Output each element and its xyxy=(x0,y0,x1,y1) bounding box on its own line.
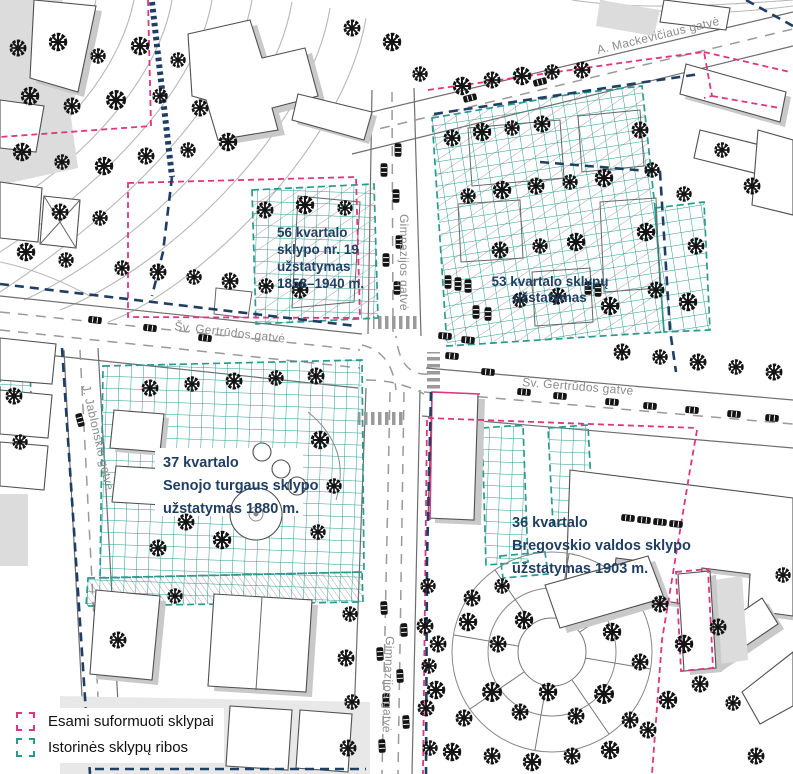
tree-icon xyxy=(638,224,654,240)
tree-icon xyxy=(151,265,165,279)
tree-icon xyxy=(727,697,740,710)
tree-icon xyxy=(220,134,236,150)
tree-icon xyxy=(422,580,435,593)
tree-icon xyxy=(339,651,353,665)
tree-icon xyxy=(444,744,460,760)
tree-icon xyxy=(745,179,759,193)
building xyxy=(678,571,722,675)
tree-icon xyxy=(524,754,540,770)
tree-icon xyxy=(258,203,272,217)
annotation-line: užstatymas xyxy=(470,290,630,306)
tree-icon xyxy=(568,234,584,250)
annotation-line: užstatymas 1880 m. xyxy=(163,498,319,521)
car-icon xyxy=(75,413,85,428)
street-label-gimnazijos-north: Gimnazijos gatvė xyxy=(397,214,411,311)
tree-icon xyxy=(96,158,112,174)
tree-icon xyxy=(623,713,637,727)
tree-icon xyxy=(676,636,692,652)
tree-icon xyxy=(575,63,589,77)
car-icon xyxy=(143,324,157,332)
tree-icon xyxy=(94,212,107,225)
tree-icon xyxy=(569,709,583,723)
tree-icon xyxy=(143,381,157,395)
tree-icon xyxy=(711,620,725,634)
annotation-block37: 37 kvartalo Senojo turgaus sklypo užstat… xyxy=(163,452,319,521)
car-icon xyxy=(393,189,400,203)
annotation-line: užstatymas xyxy=(277,258,364,275)
tree-icon xyxy=(188,271,201,284)
car-icon xyxy=(455,277,462,291)
tree-icon xyxy=(419,701,433,715)
tree-icon xyxy=(513,705,527,719)
crosswalk xyxy=(373,316,417,329)
car-icon xyxy=(445,275,452,289)
tree-icon xyxy=(172,54,185,67)
annotation-block56: 56 kvartalo sklypo nr. 19 užstatymas 185… xyxy=(277,224,364,292)
tree-icon xyxy=(474,124,490,140)
tree-icon xyxy=(615,345,629,359)
car-icon xyxy=(473,305,480,319)
car-icon xyxy=(685,406,699,414)
tree-icon xyxy=(116,262,129,275)
tree-icon xyxy=(485,749,499,763)
building xyxy=(90,590,166,685)
crosswalk xyxy=(358,412,404,425)
car-icon xyxy=(605,398,619,406)
car-icon xyxy=(396,669,404,683)
tree-icon xyxy=(18,244,34,260)
tree-icon xyxy=(596,686,613,703)
tree-icon xyxy=(132,38,148,54)
tree-icon xyxy=(431,637,445,651)
tree-icon xyxy=(418,619,432,633)
tree-icon xyxy=(633,123,647,137)
building xyxy=(428,392,485,525)
historic-plots-swatch-icon xyxy=(16,738,35,757)
tree-icon xyxy=(654,351,667,364)
car-icon xyxy=(461,336,475,344)
tree-icon xyxy=(227,374,241,388)
annotation-line: užstatymas 1903 m. xyxy=(512,558,691,581)
tree-icon xyxy=(193,101,207,115)
car-icon xyxy=(381,163,388,177)
tree-icon xyxy=(345,21,359,35)
tree-icon xyxy=(649,283,663,297)
tree-icon xyxy=(641,723,655,737)
annotation-line: 37 kvartalo xyxy=(163,452,319,475)
building xyxy=(30,0,102,97)
building xyxy=(292,94,377,144)
tree-icon xyxy=(767,365,781,379)
tree-icon xyxy=(691,355,705,369)
tree-icon xyxy=(445,131,459,145)
car-icon xyxy=(533,77,548,87)
tree-icon xyxy=(540,684,556,700)
tree-icon xyxy=(485,73,499,87)
tree-icon xyxy=(454,78,470,94)
tree-icon xyxy=(653,597,667,611)
car-icon xyxy=(88,316,102,324)
annotation-line: 1858–1940 m. xyxy=(277,275,364,292)
tree-icon xyxy=(516,612,532,628)
building xyxy=(208,594,318,697)
tree-icon xyxy=(428,682,444,698)
annotation-line: sklypo nr. 19 xyxy=(277,241,364,258)
tree-icon xyxy=(535,117,549,131)
car-icon xyxy=(553,392,567,400)
annotation-line: Bregovskio valdos sklypo xyxy=(512,535,691,558)
car-icon xyxy=(445,352,459,360)
tree-icon xyxy=(341,741,355,755)
tree-icon xyxy=(111,633,125,647)
tree-icon xyxy=(309,369,323,383)
tree-icon xyxy=(730,361,743,374)
car-icon xyxy=(765,414,779,422)
legend-item-label: Esami suformuoti sklypai xyxy=(48,713,214,730)
legend-item-label: Istorinės sklypų ribos xyxy=(48,739,188,756)
car-icon xyxy=(463,93,478,103)
crosswalk xyxy=(427,352,440,392)
tree-icon xyxy=(414,68,427,81)
tree-icon xyxy=(693,677,707,691)
tree-icon xyxy=(346,696,359,709)
tree-icon xyxy=(223,274,237,288)
tree-icon xyxy=(344,608,357,621)
tree-icon xyxy=(11,41,25,55)
tree-icon xyxy=(297,197,313,213)
map-graphics: A. Mackevičiaus gatvė Šv. Gertrūdos gatv… xyxy=(0,0,793,774)
tree-icon xyxy=(660,692,676,708)
tree-icon xyxy=(749,749,763,763)
tree-icon xyxy=(460,614,476,630)
tree-icon xyxy=(546,66,559,79)
annotation-block36: 36 kvartalo Bregovskio valdos sklypo užs… xyxy=(512,512,691,581)
tree-icon xyxy=(214,532,230,548)
annotation-line: 36 kvartalo xyxy=(512,512,691,535)
map-canvas: A. Mackevičiaus gatvė Šv. Gertrūdos gatv… xyxy=(0,0,793,774)
tree-icon xyxy=(53,205,67,219)
car-icon xyxy=(481,368,495,376)
car-icon xyxy=(402,715,410,729)
tree-icon xyxy=(22,88,38,104)
tree-icon xyxy=(65,99,79,113)
car-icon xyxy=(485,307,492,321)
tree-icon xyxy=(604,624,620,640)
car-icon xyxy=(380,601,388,615)
street-label-gertrudos-east: Šv. Gertrūdos gatvė xyxy=(522,374,634,398)
tree-icon xyxy=(50,34,66,50)
tree-icon xyxy=(457,711,471,725)
building xyxy=(680,64,791,127)
map-legend: Esami suformuoti sklypai Istorinės sklyp… xyxy=(10,708,224,763)
car-icon xyxy=(643,402,657,410)
tree-icon xyxy=(484,684,501,701)
tree-icon xyxy=(60,254,73,267)
annotation-block53: 53 kvartalo sklypų užstatymas xyxy=(470,274,630,306)
tree-icon xyxy=(633,655,647,669)
tree-icon xyxy=(14,436,27,449)
tree-icon xyxy=(14,144,30,160)
existing-plots-swatch-icon xyxy=(16,712,35,731)
annotation-line: Senojo turgaus sklypo xyxy=(163,475,319,498)
tree-icon xyxy=(602,742,618,758)
tree-icon xyxy=(496,580,509,593)
tree-icon xyxy=(514,68,530,84)
legend-item-historic-plots: Istorinės sklypų ribos xyxy=(16,738,214,757)
car-icon xyxy=(727,410,741,418)
tree-icon xyxy=(465,591,479,605)
tree-icon xyxy=(154,90,167,103)
tree-icon xyxy=(182,144,195,157)
annotation-line: 56 kvartalo xyxy=(277,224,364,241)
tree-icon xyxy=(491,637,505,651)
car-icon xyxy=(378,739,386,753)
tree-icon xyxy=(596,170,612,186)
tree-icon xyxy=(529,179,543,193)
tree-icon xyxy=(139,149,153,163)
car-icon xyxy=(438,332,452,340)
tree-icon xyxy=(493,243,507,257)
tree-icon xyxy=(689,239,703,253)
car-icon xyxy=(395,143,402,157)
legend-item-existing-plots: Esami suformuoti sklypai xyxy=(16,712,214,731)
tree-icon xyxy=(565,749,579,763)
tree-icon xyxy=(678,188,691,201)
tree-icon xyxy=(151,541,165,555)
tree-icon xyxy=(494,182,510,198)
annotation-line: 53 kvartalo sklypų xyxy=(470,274,630,290)
car-icon xyxy=(400,623,408,637)
building xyxy=(188,20,325,145)
tree-icon xyxy=(312,432,328,448)
car-icon xyxy=(383,253,390,267)
tree-icon xyxy=(384,34,400,50)
tree-icon xyxy=(680,294,696,310)
tree-icon xyxy=(7,389,21,403)
tree-icon xyxy=(108,92,125,109)
